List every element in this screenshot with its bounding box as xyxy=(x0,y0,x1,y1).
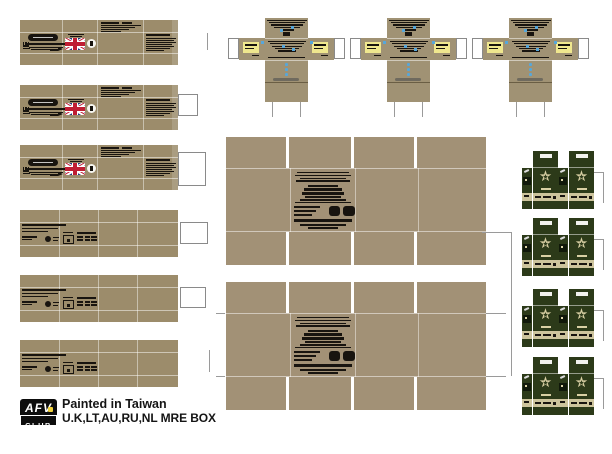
print-line xyxy=(22,354,66,356)
flap-slash xyxy=(524,375,529,379)
flap-dot xyxy=(561,385,563,387)
case-top-flap xyxy=(417,282,486,313)
print-line xyxy=(300,323,346,324)
label-mark xyxy=(489,44,501,46)
print-line xyxy=(146,171,174,172)
arrow-head-icon xyxy=(58,172,63,176)
print-line xyxy=(146,42,176,43)
print-line xyxy=(22,296,48,297)
print-line xyxy=(146,103,176,104)
union-jack-flag xyxy=(65,103,85,115)
handle-slot xyxy=(576,292,588,296)
fold-line xyxy=(290,313,291,377)
green-box-flap xyxy=(558,374,568,415)
stamp-text-dash xyxy=(33,162,53,163)
arrow-shaft xyxy=(50,174,58,176)
mre-case-template-2 xyxy=(226,282,486,410)
accent-dot xyxy=(413,26,416,29)
uk-ration-strip-1 xyxy=(20,20,178,65)
band-mark xyxy=(589,334,592,337)
guide-line xyxy=(394,102,395,117)
print-line xyxy=(308,185,338,188)
fold-line xyxy=(20,157,178,158)
print-line xyxy=(308,372,338,374)
handle-slot xyxy=(576,154,588,158)
print-line xyxy=(514,43,548,44)
guide-line xyxy=(216,313,225,314)
print-line xyxy=(294,364,352,367)
print-seg xyxy=(77,369,83,371)
accent-dot xyxy=(285,68,288,71)
accent-dot xyxy=(529,63,532,66)
print-line xyxy=(516,46,546,47)
band-mark xyxy=(571,196,577,198)
print-line xyxy=(146,159,170,161)
print-line xyxy=(53,237,59,238)
print-seg xyxy=(77,366,83,368)
arrow-shaft xyxy=(50,49,58,51)
accent-dot xyxy=(282,45,285,48)
print-line xyxy=(304,333,342,336)
star-inner: ★ xyxy=(569,311,594,320)
flap-dot xyxy=(561,246,563,248)
number-badge xyxy=(87,164,96,173)
maker-icon xyxy=(63,235,74,244)
print-line xyxy=(269,22,305,23)
print-line xyxy=(22,239,32,240)
fold-line xyxy=(290,168,291,232)
accent-dot xyxy=(524,29,527,32)
green-box-flap xyxy=(522,168,532,209)
band-mark xyxy=(543,196,551,198)
print-block xyxy=(283,32,290,36)
uk-ration-strip-2 xyxy=(20,85,178,130)
text-band xyxy=(569,331,594,339)
afv-logo-bottom: CLUB xyxy=(20,415,57,426)
print-line xyxy=(53,370,58,371)
star-underscore xyxy=(541,188,551,190)
accent-dot xyxy=(414,48,417,51)
star-underscore xyxy=(577,255,587,257)
print-line xyxy=(146,46,174,47)
guide-line xyxy=(603,239,604,270)
case-bottom-flap xyxy=(354,377,414,410)
print-line xyxy=(101,22,119,24)
mre-case-template-1 xyxy=(226,137,486,265)
fold-line xyxy=(20,287,178,288)
accent-dot xyxy=(383,41,386,44)
fold-line xyxy=(509,60,552,61)
label-mark xyxy=(245,48,254,50)
text-band xyxy=(533,399,558,407)
plain-ration-strip-1 xyxy=(20,210,178,257)
star-inner: ★ xyxy=(569,379,594,388)
print-line xyxy=(146,44,172,45)
band-mark xyxy=(535,334,541,336)
badge-glyph xyxy=(90,166,94,171)
print-line xyxy=(22,358,58,360)
uk-ration-strip-3 xyxy=(20,145,178,190)
print-line xyxy=(305,341,341,344)
print-seg xyxy=(85,304,90,306)
case-top-flap xyxy=(226,282,286,313)
print-line xyxy=(22,369,32,370)
cross-box-template-3 xyxy=(472,18,590,117)
afv-logo-top: AFV xyxy=(20,399,57,415)
green-box-main: ★★ xyxy=(533,289,558,347)
print-line xyxy=(22,361,48,362)
fold-line xyxy=(20,245,178,246)
roundel-icon xyxy=(45,236,51,242)
icon-dot xyxy=(67,239,70,242)
guide-line xyxy=(544,102,545,117)
accent-dot xyxy=(505,41,508,44)
band-mark xyxy=(543,402,551,404)
print-line xyxy=(512,41,550,42)
print-line xyxy=(565,55,572,56)
print-blob xyxy=(329,206,340,216)
green-box-flap xyxy=(558,306,568,347)
fold-line xyxy=(418,313,419,377)
accent-dot xyxy=(526,45,529,48)
fold-line xyxy=(59,275,60,322)
print-smudge xyxy=(517,78,543,81)
stamp-text-dash xyxy=(33,37,53,38)
flap-band xyxy=(522,399,532,407)
print-line xyxy=(146,173,170,174)
flap-band xyxy=(522,193,532,201)
print-seg xyxy=(77,304,83,306)
guide-line xyxy=(511,232,512,376)
fold-line xyxy=(143,145,144,190)
print-line xyxy=(101,96,121,97)
band-mark xyxy=(560,401,565,403)
plain-ration-strip-3 xyxy=(20,340,178,387)
flag-cross xyxy=(65,107,85,110)
star-emblem-icon: ★★ xyxy=(569,235,594,253)
flap-left xyxy=(228,38,239,59)
print-seg xyxy=(91,239,97,241)
print-rule xyxy=(512,57,549,58)
print-line xyxy=(308,330,338,333)
print-line xyxy=(22,293,58,295)
print-line xyxy=(22,224,66,226)
green-box-main: ★★ xyxy=(533,218,558,276)
band-mark xyxy=(524,333,529,335)
band-mark xyxy=(543,334,551,336)
print-line xyxy=(496,55,503,56)
fold-line-dark xyxy=(509,82,552,83)
union-jack-flag xyxy=(65,38,85,50)
accent-dot xyxy=(529,73,532,76)
print-line xyxy=(270,43,304,44)
fold-line xyxy=(143,85,144,130)
ration-oval-stamp xyxy=(28,34,58,41)
print-line xyxy=(22,228,58,230)
accent-dot xyxy=(285,73,288,76)
fold-line xyxy=(265,60,308,61)
star-emblem-icon: ★★ xyxy=(533,306,558,324)
fold-line xyxy=(20,375,178,376)
accent-dot xyxy=(407,63,410,66)
print-line xyxy=(294,359,312,362)
print-line xyxy=(393,24,425,25)
flap-slash xyxy=(560,236,565,240)
print-seg xyxy=(77,301,83,303)
accent-dot xyxy=(280,29,283,32)
print-line xyxy=(22,304,32,305)
label-mark xyxy=(558,44,570,46)
flap-dot xyxy=(525,246,527,248)
print-line xyxy=(321,55,328,56)
die-cut-flap xyxy=(180,222,208,244)
print-line xyxy=(77,297,96,299)
fold-line xyxy=(226,168,486,169)
print-blob xyxy=(329,351,340,361)
print-line xyxy=(68,34,84,35)
crown-body xyxy=(23,110,29,112)
die-cut-flap xyxy=(178,152,206,186)
guide-line xyxy=(603,172,604,203)
print-line xyxy=(146,111,174,112)
accent-dot xyxy=(554,41,557,44)
print-line xyxy=(518,27,544,28)
yellow-label xyxy=(312,42,328,53)
cross-box-template-2 xyxy=(350,18,468,117)
flap-band xyxy=(558,193,568,201)
print-line xyxy=(77,232,96,234)
text-band xyxy=(569,260,594,268)
green-box-main: ★★ xyxy=(533,151,558,209)
print-line xyxy=(53,240,58,241)
print-line xyxy=(146,40,174,41)
green-box-main: ★★ xyxy=(569,357,594,415)
star-emblem-icon: ★★ xyxy=(569,306,594,324)
print-line xyxy=(146,169,172,170)
print-line xyxy=(294,351,320,354)
label-mark xyxy=(367,48,376,50)
fold-line xyxy=(97,145,98,190)
fold-line xyxy=(20,352,178,353)
green-box-main: ★★ xyxy=(569,289,594,347)
flap-right xyxy=(456,38,467,59)
case-top-flap xyxy=(417,137,486,168)
green-box-flap xyxy=(558,168,568,209)
print-line xyxy=(101,29,129,30)
fold-line xyxy=(143,20,144,65)
print-line xyxy=(53,367,59,368)
accent-dot xyxy=(261,41,264,44)
badge-glyph xyxy=(90,106,94,111)
roundel-icon xyxy=(45,366,51,372)
green-box-flap xyxy=(522,235,532,276)
fold-line-dark xyxy=(265,82,308,83)
band-mark xyxy=(543,263,551,265)
logo-yellow-dot xyxy=(48,407,53,412)
flap-band xyxy=(522,331,532,339)
accent-dot xyxy=(407,68,410,71)
print-line xyxy=(274,27,300,28)
print-seg xyxy=(91,301,97,303)
flap-dot xyxy=(525,179,527,181)
guide-line xyxy=(422,102,423,117)
case-top-flap xyxy=(226,137,286,168)
accent-dot xyxy=(529,68,532,71)
print-line xyxy=(101,150,141,151)
case-top-flap xyxy=(354,137,414,168)
number-badge xyxy=(87,39,96,48)
fold-line xyxy=(355,313,356,377)
case-bottom-flap xyxy=(226,377,286,410)
print-line xyxy=(146,107,176,108)
print-line xyxy=(295,347,351,348)
label-mark xyxy=(314,44,326,46)
print-line xyxy=(146,165,174,166)
band-mark xyxy=(571,334,577,336)
fold-line xyxy=(20,53,178,54)
case-bottom-flap xyxy=(226,232,286,265)
print-line xyxy=(101,147,119,149)
fold-line xyxy=(137,275,138,322)
roundel-icon xyxy=(45,301,51,307)
arrow-head-icon xyxy=(58,47,63,51)
case-bottom-flap xyxy=(354,232,414,265)
flap-right xyxy=(578,38,589,59)
case-top-flap xyxy=(354,282,414,313)
print-seg xyxy=(85,239,90,241)
icon-dot xyxy=(67,369,70,372)
print-line xyxy=(302,337,344,340)
print-line xyxy=(146,113,170,114)
print-line xyxy=(53,305,58,306)
handle-slot xyxy=(540,360,552,364)
text-band xyxy=(533,260,558,268)
print-line xyxy=(146,48,170,49)
print-line xyxy=(70,36,82,37)
print-line xyxy=(300,369,346,372)
print-line xyxy=(146,163,176,164)
accent-dot xyxy=(404,45,407,48)
plain-ration-strip-2 xyxy=(20,275,178,322)
fold-line xyxy=(20,310,178,311)
accent-dot xyxy=(292,48,295,51)
print-line xyxy=(22,366,37,368)
crown-body xyxy=(23,170,29,172)
flag-cross xyxy=(65,167,85,170)
print-seg xyxy=(91,304,97,306)
print-line xyxy=(443,55,450,56)
star-inner: ★ xyxy=(569,240,594,249)
flap-dot xyxy=(561,179,563,181)
yellow-label xyxy=(487,42,503,53)
star-inner: ★ xyxy=(533,311,558,320)
fold-line xyxy=(98,340,99,387)
star-underscore xyxy=(541,255,551,257)
band-mark xyxy=(579,402,587,404)
band-mark xyxy=(579,196,587,198)
print-line xyxy=(511,20,551,21)
print-line xyxy=(146,105,174,106)
print-line xyxy=(53,302,59,303)
ration-oval-stamp xyxy=(28,159,58,166)
print-line xyxy=(22,289,66,291)
flap-slash xyxy=(560,307,565,311)
crown-body xyxy=(23,45,29,47)
print-line xyxy=(146,175,164,176)
fold-line xyxy=(20,222,178,223)
star-inner: ★ xyxy=(533,379,558,388)
text-band xyxy=(569,399,594,407)
print-line xyxy=(295,202,351,203)
fold-line xyxy=(98,275,99,322)
guide-line xyxy=(516,102,517,117)
print-line xyxy=(296,325,350,326)
flap-right xyxy=(334,38,345,59)
flap-dot xyxy=(561,317,563,319)
accent-dot xyxy=(535,26,538,29)
label-mark xyxy=(436,44,448,46)
accent-dot xyxy=(432,41,435,44)
crown-base xyxy=(23,113,30,115)
print-rule xyxy=(390,57,427,58)
print-seg xyxy=(77,239,83,241)
band-mark xyxy=(524,262,529,264)
crown-base xyxy=(23,173,30,175)
fold-line xyxy=(97,20,98,65)
band-mark xyxy=(535,402,541,404)
flap-slash xyxy=(524,169,529,173)
star-underscore xyxy=(577,188,587,190)
print-line xyxy=(68,159,84,160)
label-mark xyxy=(245,44,257,46)
print-line xyxy=(146,50,164,51)
star-emblem-icon: ★★ xyxy=(569,168,594,186)
print-line xyxy=(101,25,141,26)
print-rule xyxy=(268,57,305,58)
print-seg xyxy=(85,366,90,368)
print-line xyxy=(101,154,129,155)
case-bottom-flap xyxy=(417,232,486,265)
handle-slot xyxy=(576,221,588,225)
fold-line xyxy=(20,97,178,98)
label-mark xyxy=(558,48,567,50)
band-mark xyxy=(589,196,592,199)
print-seg xyxy=(91,366,97,368)
print-line xyxy=(294,214,312,217)
die-cut-flap xyxy=(178,94,198,116)
star-underscore xyxy=(541,326,551,328)
band-mark xyxy=(553,196,556,199)
arrow-head-icon xyxy=(58,112,63,116)
guide-line xyxy=(603,310,604,341)
print-line xyxy=(63,232,73,233)
print-line xyxy=(101,90,141,91)
maker-icon xyxy=(63,300,74,309)
flap-band xyxy=(558,260,568,268)
print-line xyxy=(374,55,381,56)
label-mark xyxy=(367,44,379,46)
print-line xyxy=(252,55,259,56)
fold-line xyxy=(509,38,552,39)
fold-line xyxy=(20,178,178,179)
case-top-flap xyxy=(289,137,351,168)
star-inner: ★ xyxy=(533,173,558,182)
icon-dot xyxy=(67,304,70,307)
fold-line xyxy=(418,168,419,232)
green-star-box-group-2: ★★★★ xyxy=(522,218,594,276)
accent-dot xyxy=(291,26,294,29)
print-line xyxy=(391,22,427,23)
